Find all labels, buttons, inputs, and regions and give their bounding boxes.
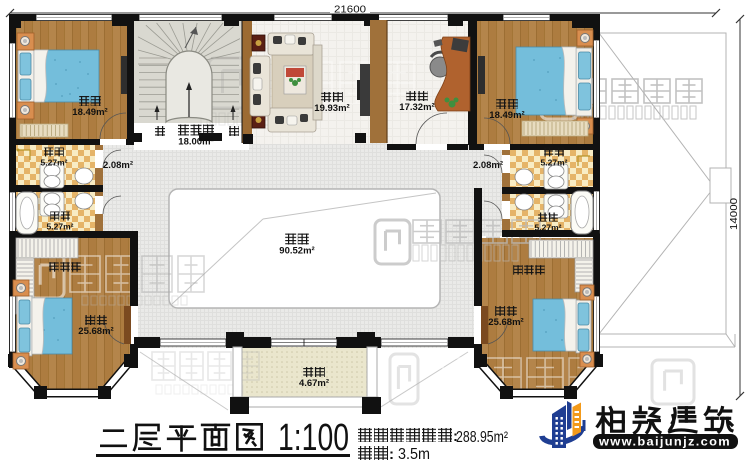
svg-text:19.93m²: 19.93m² [314,103,349,114]
svg-text:www.baijunjz.com: www.baijunjz.com [598,437,731,449]
svg-text:5.27m²: 5.27m² [541,158,568,168]
svg-text:14000: 14000 [728,198,740,230]
svg-text:5.27m²: 5.27m² [41,158,68,168]
svg-text:5.27m²: 5.27m² [535,223,562,233]
svg-text:2.08m²: 2.08m² [473,160,503,171]
svg-text:18.00m²: 18.00m² [178,137,213,148]
svg-text:21600: 21600 [334,4,366,16]
svg-text:18.49m²: 18.49m² [72,107,107,118]
svg-text:25.68m²: 25.68m² [78,326,113,337]
svg-text:288.95m²: 288.95m² [456,429,508,446]
svg-text:3.5m: 3.5m [398,446,430,463]
svg-text:2.08m²: 2.08m² [103,160,133,171]
svg-text::: : [389,446,394,463]
svg-text:17.32m²: 17.32m² [399,102,434,113]
svg-text:90.52m²: 90.52m² [279,246,314,257]
svg-text:25.68m²: 25.68m² [488,317,523,328]
svg-text:1:100: 1:100 [278,417,349,459]
svg-text:5.27m²: 5.27m² [47,222,74,232]
svg-text:18.49m²: 18.49m² [489,110,524,121]
svg-text:4.67m²: 4.67m² [299,378,329,389]
